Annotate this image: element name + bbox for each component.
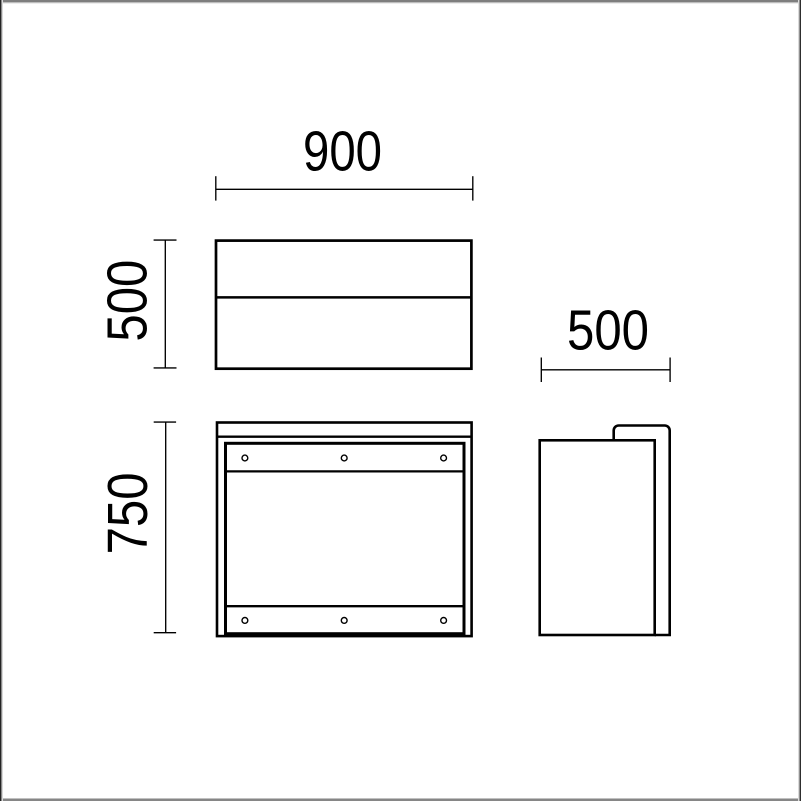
svg-text:900: 900 [303, 119, 382, 183]
svg-text:500: 500 [96, 260, 160, 342]
svg-text:750: 750 [96, 472, 160, 554]
svg-text:500: 500 [567, 299, 649, 363]
